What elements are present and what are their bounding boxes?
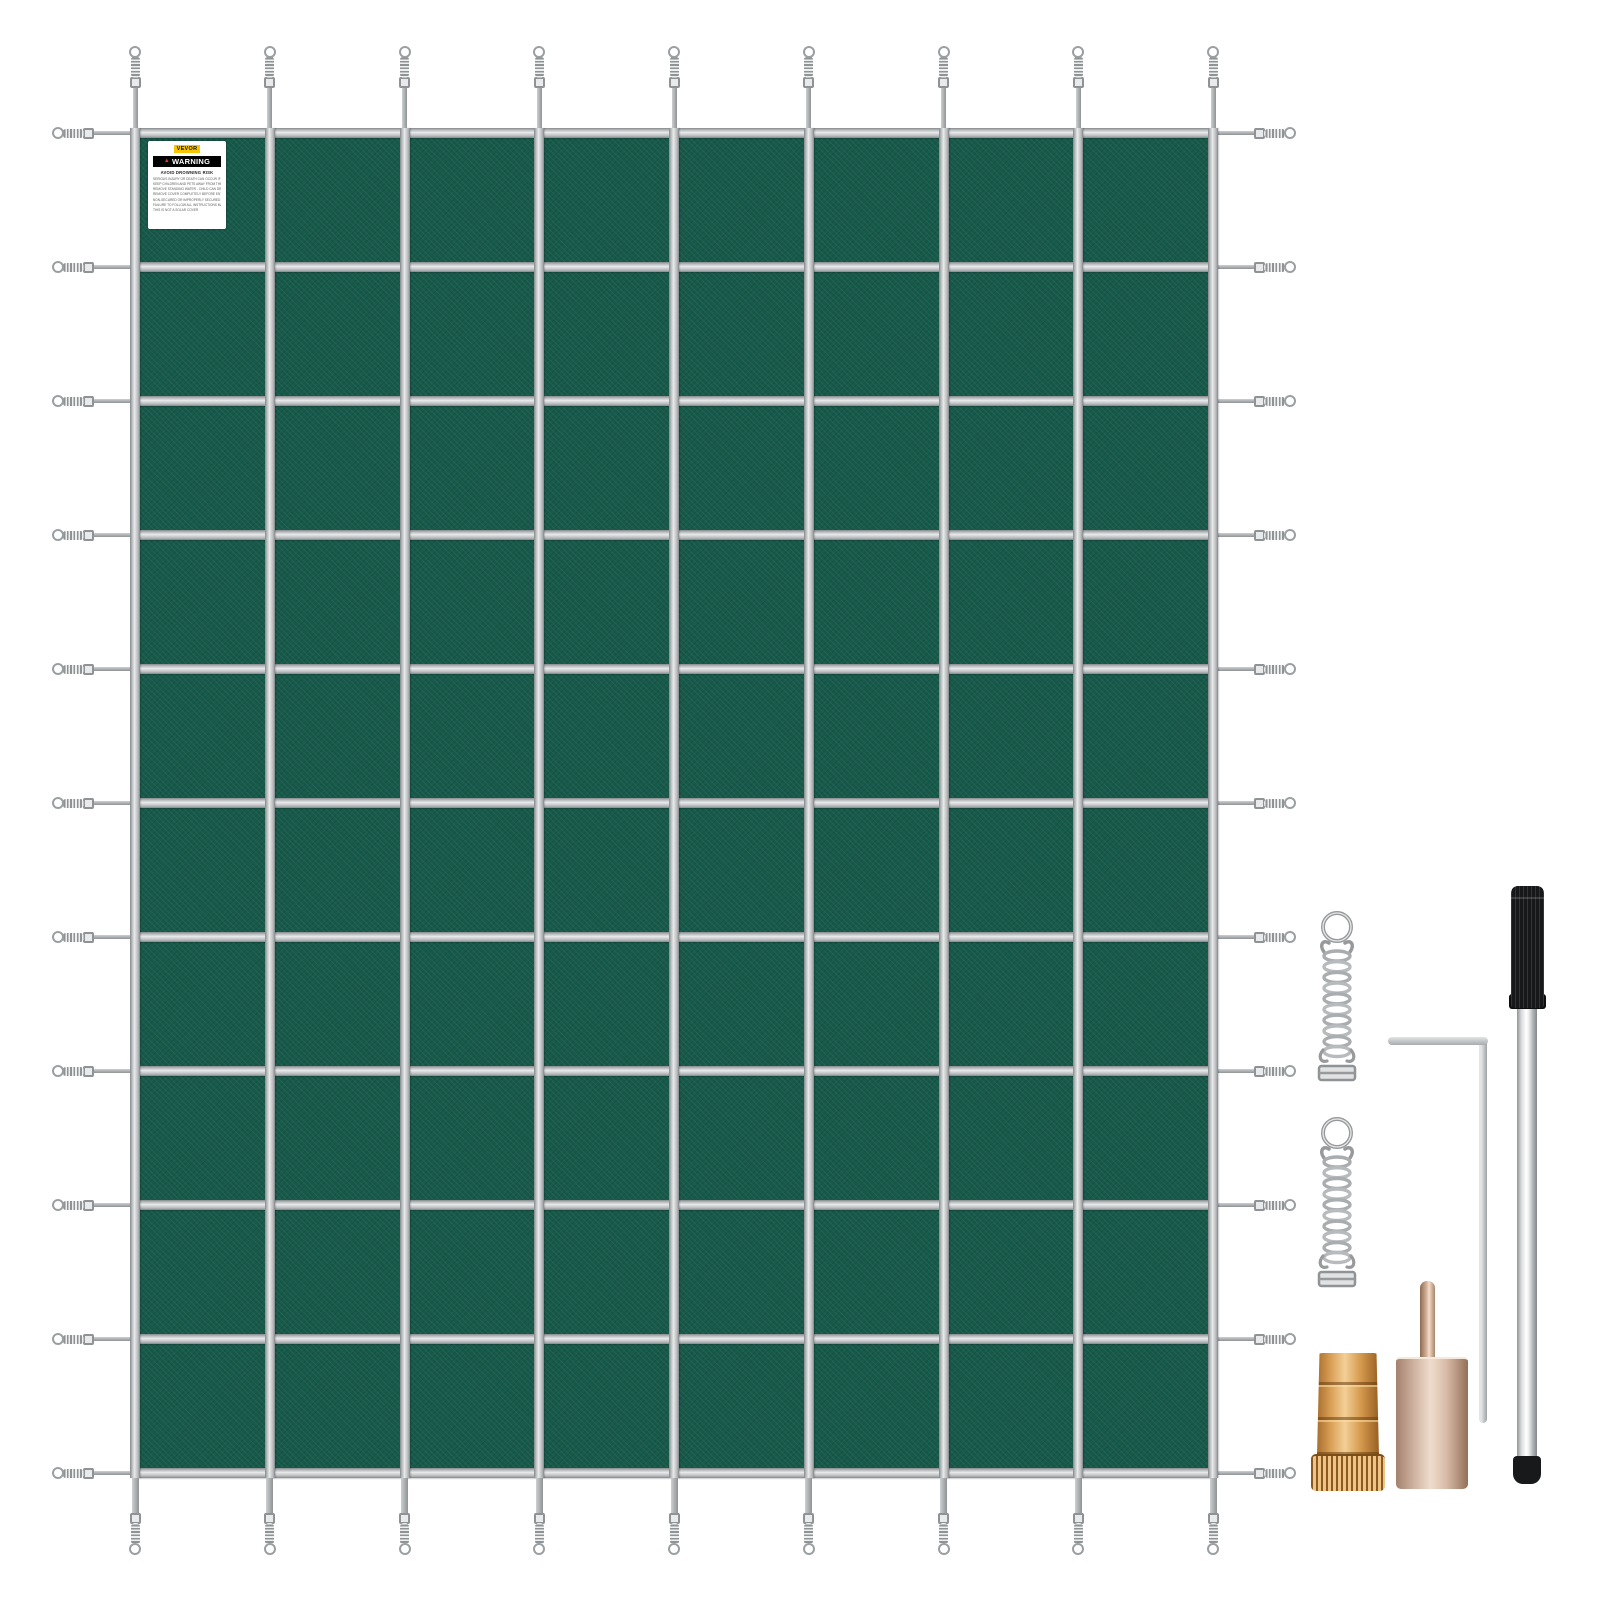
strap-buckle: [803, 77, 814, 88]
strap-coil: [670, 1523, 679, 1545]
strap-coil: [670, 56, 679, 78]
strap-coil: [131, 56, 140, 78]
strap-buckle: [83, 128, 94, 139]
strap-coil: [1074, 56, 1083, 78]
strap-tail: [94, 399, 135, 403]
strap-ring: [1284, 931, 1296, 943]
anchor-spring: [1312, 904, 1362, 1086]
strap-tail: [671, 1478, 678, 1514]
strap-tail: [1213, 399, 1254, 403]
tamping-tool-pin: [1420, 1281, 1435, 1359]
strap-ring: [52, 127, 64, 139]
strap-buckle: [83, 530, 94, 541]
strap-tail: [94, 1203, 135, 1207]
strap-ring: [52, 1199, 64, 1211]
strap-ring: [1284, 797, 1296, 809]
strap-coil: [939, 1523, 948, 1545]
strap-ring: [52, 261, 64, 273]
strap-tail: [1213, 1069, 1254, 1073]
strap-tail: [266, 1478, 273, 1514]
strap-coil: [131, 1523, 140, 1545]
strap-tail: [133, 87, 138, 128]
strap-buckle: [83, 1334, 94, 1345]
strap-coil: [535, 1523, 544, 1545]
warning-line: NON-SECURED OR IMPROPERLY SECURED COVERS…: [153, 198, 221, 203]
strap-ring: [52, 931, 64, 943]
warning-bar: ▲ WARNING: [153, 156, 221, 167]
brass-anchor-knurl: [1311, 1454, 1385, 1491]
strap-buckle: [534, 77, 545, 88]
strap-tail: [1210, 1478, 1217, 1514]
strap-tail: [941, 87, 946, 128]
strap-coil: [1264, 531, 1286, 540]
strap-tail: [94, 265, 135, 269]
strap-ring: [668, 46, 680, 58]
strap-coil: [62, 1335, 84, 1344]
strap-tail: [1213, 131, 1254, 135]
strap-tail: [536, 1478, 543, 1514]
strap-coil: [1264, 799, 1286, 808]
strap-tail: [1213, 667, 1254, 671]
strap-ring: [1284, 395, 1296, 407]
strap-ring: [52, 529, 64, 541]
strap-coil: [1074, 1523, 1083, 1545]
strap-tail: [94, 935, 135, 939]
strap-buckle: [83, 396, 94, 407]
strap-coil: [62, 1067, 84, 1076]
strap-coil: [62, 397, 84, 406]
strap-tail: [94, 1337, 135, 1341]
strap-ring: [129, 46, 141, 58]
strap-ring: [533, 1543, 545, 1555]
strap-buckle: [83, 1468, 94, 1479]
hex-key: [1479, 1038, 1487, 1423]
strap-ring: [264, 46, 276, 58]
grid-strap-vertical: [669, 128, 679, 1478]
strap-coil: [1264, 1201, 1286, 1210]
strap-coil: [265, 1523, 274, 1545]
strap-coil: [1264, 933, 1286, 942]
strap-coil: [939, 56, 948, 78]
installation-rod-tip: [1513, 1456, 1541, 1484]
strap-tail: [1213, 935, 1254, 939]
warning-fine-print: SERIOUS INJURY OR DEATH CAN OCCUR IF ANY…: [153, 177, 221, 213]
strap-ring: [1284, 1467, 1296, 1479]
strap-tail: [94, 1069, 135, 1073]
strap-ring: [1072, 46, 1084, 58]
strap-tail: [1213, 1337, 1254, 1341]
strap-tail: [1075, 1478, 1082, 1514]
strap-coil: [400, 1523, 409, 1545]
strap-ring: [399, 46, 411, 58]
installation-rod-handle: [1511, 886, 1544, 1008]
strap-coil: [804, 1523, 813, 1545]
strap-ring: [938, 46, 950, 58]
strap-tail: [402, 87, 407, 128]
strap-ring: [52, 663, 64, 675]
strap-ring: [52, 1333, 64, 1345]
strap-buckle: [399, 77, 410, 88]
strap-ring: [803, 1543, 815, 1555]
tamping-tool: [1396, 1357, 1468, 1489]
strap-coil: [62, 933, 84, 942]
strap-buckle: [83, 932, 94, 943]
warning-title: WARNING: [172, 157, 210, 166]
strap-coil: [535, 56, 544, 78]
strap-buckle: [83, 798, 94, 809]
strap-ring: [1284, 663, 1296, 675]
strap-tail: [1213, 265, 1254, 269]
strap-coil: [62, 1469, 84, 1478]
strap-ring: [1284, 1333, 1296, 1345]
strap-buckle: [669, 77, 680, 88]
strap-tail: [940, 1478, 947, 1514]
strap-ring: [803, 46, 815, 58]
grid-strap-vertical: [804, 128, 814, 1478]
strap-ring: [399, 1543, 411, 1555]
strap-ring: [52, 1065, 64, 1077]
strap-coil: [62, 665, 84, 674]
strap-buckle: [83, 664, 94, 675]
strap-tail: [1213, 801, 1254, 805]
strap-coil: [265, 56, 274, 78]
strap-tail: [1213, 533, 1254, 537]
strap-ring: [1284, 1065, 1296, 1077]
strap-tail: [672, 87, 677, 128]
strap-coil: [1209, 56, 1218, 78]
strap-tail: [401, 1478, 408, 1514]
strap-ring: [668, 1543, 680, 1555]
warning-subtitle: AVOID DROWNING RISK: [153, 170, 221, 175]
anchor-spring: [1312, 1110, 1362, 1292]
strap-coil: [1209, 1523, 1218, 1545]
strap-coil: [400, 56, 409, 78]
strap-tail: [94, 667, 135, 671]
grid-strap-vertical: [130, 128, 140, 1478]
strap-coil: [1264, 665, 1286, 674]
strap-buckle: [1073, 77, 1084, 88]
strap-ring: [1207, 1543, 1219, 1555]
grid-strap-vertical: [265, 128, 275, 1478]
strap-buckle: [83, 262, 94, 273]
warning-triangle-icon: ▲: [164, 158, 170, 164]
strap-coil: [62, 263, 84, 272]
brand-badge: VEVOR: [174, 145, 201, 153]
grid-strap-vertical: [400, 128, 410, 1478]
strap-buckle: [130, 77, 141, 88]
hex-key-arm: [1388, 1037, 1488, 1045]
strap-coil: [1264, 1067, 1286, 1076]
strap-ring: [938, 1543, 950, 1555]
strap-coil: [1264, 1335, 1286, 1344]
strap-buckle: [83, 1066, 94, 1077]
strap-tail: [94, 801, 135, 805]
strap-ring: [1207, 46, 1219, 58]
grid-strap-vertical: [1073, 128, 1083, 1478]
strap-tail: [537, 87, 542, 128]
strap-tail: [94, 1471, 135, 1475]
strap-ring: [1284, 529, 1296, 541]
strap-coil: [804, 56, 813, 78]
strap-ring: [1284, 261, 1296, 273]
strap-ring: [52, 797, 64, 809]
strap-coil: [1264, 129, 1286, 138]
strap-coil: [1264, 263, 1286, 272]
warning-line: REMOVE COVER COMPLETELY BEFORE ENTRY OF …: [153, 192, 221, 197]
grid-strap-vertical: [939, 128, 949, 1478]
warning-line: THIS IS NOT A SOLAR COVER: [153, 208, 221, 213]
strap-ring: [1284, 1199, 1296, 1211]
strap-tail: [805, 1478, 812, 1514]
strap-coil: [62, 531, 84, 540]
product-photo-scene: VEVOR ▲ WARNING AVOID DROWNING RISK SERI…: [0, 0, 1600, 1600]
strap-coil: [62, 1201, 84, 1210]
grid-strap-vertical: [534, 128, 544, 1478]
strap-ring: [52, 395, 64, 407]
strap-tail: [806, 87, 811, 128]
strap-ring: [129, 1543, 141, 1555]
strap-tail: [132, 1478, 139, 1514]
installation-rod-shaft: [1517, 1008, 1537, 1460]
strap-coil: [62, 799, 84, 808]
strap-buckle: [938, 77, 949, 88]
strap-tail: [1213, 1203, 1254, 1207]
strap-ring: [1072, 1543, 1084, 1555]
strap-coil: [1264, 397, 1286, 406]
strap-tail: [1076, 87, 1081, 128]
strap-ring: [533, 46, 545, 58]
strap-tail: [1211, 87, 1216, 128]
strap-buckle: [264, 77, 275, 88]
strap-buckle: [1208, 77, 1219, 88]
strap-ring: [264, 1543, 276, 1555]
strap-tail: [94, 131, 135, 135]
strap-ring: [1284, 127, 1296, 139]
strap-tail: [1213, 1471, 1254, 1475]
warning-label: VEVOR ▲ WARNING AVOID DROWNING RISK SERI…: [148, 141, 226, 229]
strap-ring: [52, 1467, 64, 1479]
strap-coil: [1264, 1469, 1286, 1478]
strap-buckle: [83, 1200, 94, 1211]
strap-coil: [62, 129, 84, 138]
strap-tail: [267, 87, 272, 128]
grid-strap-vertical: [1208, 128, 1218, 1478]
brass-anchor: [1317, 1353, 1379, 1456]
strap-tail: [94, 533, 135, 537]
